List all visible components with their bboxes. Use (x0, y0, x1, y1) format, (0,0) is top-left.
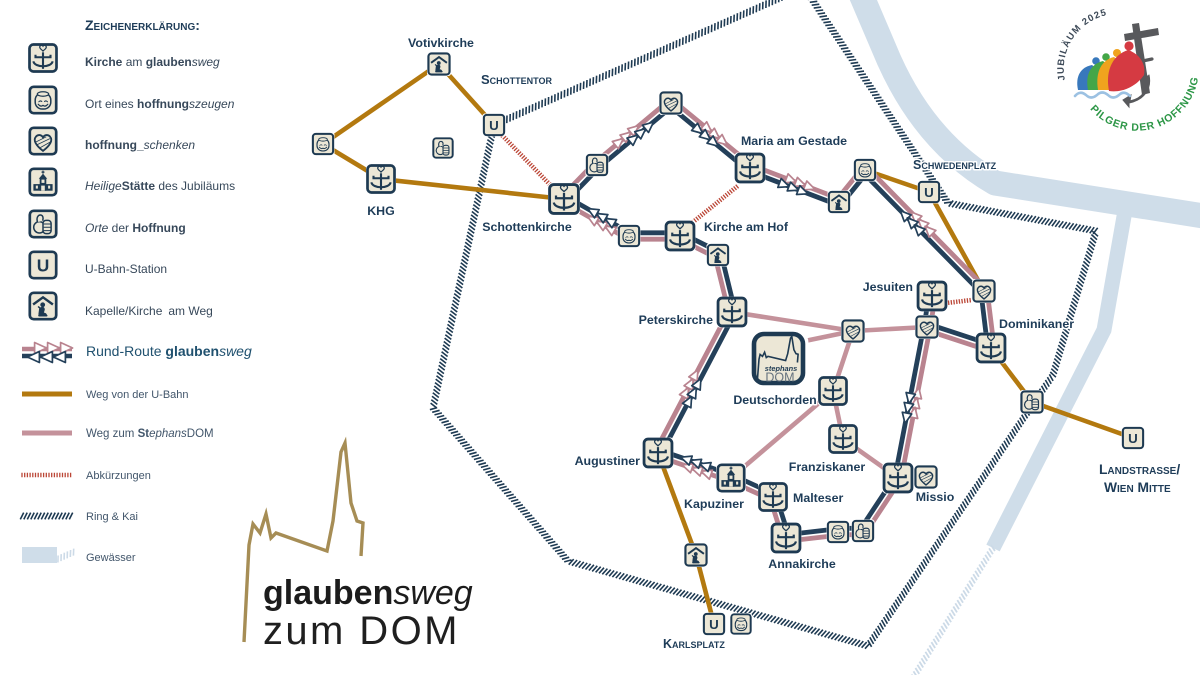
svg-text:Ring & Kai: Ring & Kai (86, 511, 138, 523)
svg-text:Maria am Gestade: Maria am Gestade (741, 134, 847, 148)
svg-text:Votivkirche: Votivkirche (408, 36, 474, 50)
svg-text:Rund-Route glaubensweg: Rund-Route glaubensweg (86, 343, 252, 359)
svg-text:Schwedenplatz: Schwedenplatz (913, 158, 997, 172)
svg-text:KHG: KHG (367, 204, 395, 218)
svg-text:hoffnung_schenken: hoffnung_schenken (85, 138, 195, 152)
svg-text:Weg zum StephansDOM: Weg zum StephansDOM (86, 428, 214, 440)
svg-text:zum DOM: zum DOM (263, 609, 460, 653)
svg-text:Dominikaner: Dominikaner (999, 317, 1074, 331)
svg-text:Zeichenerklärung:: Zeichenerklärung: (85, 17, 200, 33)
svg-text:Ort eines hoffnungszeugen: Ort eines hoffnungszeugen (85, 97, 235, 111)
svg-text:glaubensweg: glaubensweg (263, 574, 473, 612)
svg-text:DOM: DOM (765, 371, 794, 385)
svg-text:Gewässer: Gewässer (86, 552, 136, 564)
svg-text:Wien Mitte: Wien Mitte (1104, 480, 1171, 495)
svg-text:Karlsplatz: Karlsplatz (663, 637, 725, 651)
svg-text:Peterskirche: Peterskirche (639, 313, 714, 327)
svg-text:Kirche am glaubensweg: Kirche am glaubensweg (85, 55, 220, 69)
svg-text:Orte der Hoffnung: Orte der Hoffnung (85, 221, 186, 235)
svg-text:Schottenkirche: Schottenkirche (482, 220, 572, 234)
svg-text:Kirche am Hof: Kirche am Hof (704, 220, 789, 234)
svg-text:Weg von der U-Bahn: Weg von der U-Bahn (86, 389, 189, 401)
svg-text:Landstrasse/: Landstrasse/ (1099, 462, 1180, 477)
svg-text:Kapuziner: Kapuziner (684, 497, 744, 511)
svg-text:Schottentor: Schottentor (481, 72, 553, 87)
svg-text:Missio: Missio (916, 490, 955, 504)
svg-text:Kapelle/Kirche am Weg: Kapelle/Kirche am Weg (85, 304, 213, 318)
svg-text:Abkürzungen: Abkürzungen (86, 470, 151, 482)
svg-text:Jesuiten: Jesuiten (863, 280, 913, 294)
svg-text:Augustiner: Augustiner (575, 454, 641, 468)
svg-text:Deutschorden: Deutschorden (733, 393, 816, 407)
svg-text:HeiligeStätte des Jubiläums: HeiligeStätte des Jubiläums (85, 179, 235, 193)
svg-text:Franziskaner: Franziskaner (789, 460, 866, 474)
svg-text:Malteser: Malteser (793, 491, 843, 505)
svg-text:Annakirche: Annakirche (768, 557, 836, 571)
svg-text:U-Bahn-Station: U-Bahn-Station (85, 262, 167, 276)
